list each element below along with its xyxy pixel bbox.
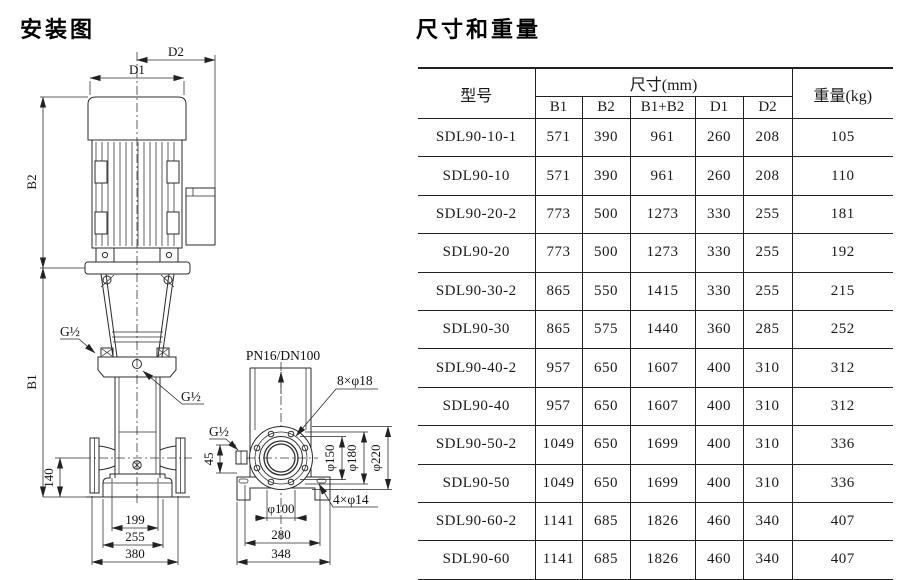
dim-140-label: 140 bbox=[41, 468, 56, 488]
dim-b1-label: B1 bbox=[24, 374, 39, 389]
dim-phi100-label: φ100 bbox=[267, 501, 294, 516]
b1-cell: 1049 bbox=[535, 426, 582, 464]
table-row: SDL90-10571390961260208110 bbox=[418, 157, 893, 195]
weight-cell: 181 bbox=[792, 195, 893, 233]
b1b2-cell: 1273 bbox=[630, 234, 695, 272]
b2-cell: 390 bbox=[582, 119, 630, 157]
table-row: SDL90-308655751440360285252 bbox=[418, 310, 893, 348]
coupling-bracket bbox=[101, 274, 174, 357]
b1b2-cell: 1826 bbox=[630, 541, 695, 580]
dim-280-label: 280 bbox=[271, 527, 291, 542]
dim-phi220-label: φ220 bbox=[368, 444, 383, 471]
dimensions-weight-table: 型号 尺寸(mm) 重量(kg) B1 B2 B1+B2 D1 D2 SDL90… bbox=[418, 67, 893, 580]
d1-cell: 330 bbox=[695, 195, 743, 233]
pump-base bbox=[86, 474, 190, 497]
weight-cell: 407 bbox=[792, 541, 893, 580]
pn-rating-label: PN16/DN100 bbox=[246, 348, 321, 363]
b2-cell: 650 bbox=[582, 387, 630, 425]
b1b2-cell: 961 bbox=[630, 157, 695, 195]
b2-cell: 685 bbox=[582, 541, 630, 580]
model-cell: SDL90-50-2 bbox=[418, 426, 535, 464]
front-view: D2 D1 B2 B1 G½ G½ 140 199 255 380 bbox=[24, 44, 215, 565]
b2-cell: 500 bbox=[582, 234, 630, 272]
col-header-d2: D2 bbox=[743, 97, 792, 119]
table-row: SDL90-10-1571390961260208105 bbox=[418, 119, 893, 157]
b1-cell: 571 bbox=[535, 157, 582, 195]
d2-cell: 340 bbox=[743, 502, 792, 540]
model-cell: SDL90-40 bbox=[418, 387, 535, 425]
leader-side-port bbox=[209, 439, 238, 450]
table-row: SDL90-60-211416851826460340407 bbox=[418, 502, 893, 540]
leader-bolt-circle bbox=[296, 389, 378, 436]
model-cell: SDL90-40-2 bbox=[418, 349, 535, 387]
d1-cell: 260 bbox=[695, 157, 743, 195]
b2-cell: 390 bbox=[582, 157, 630, 195]
flange-bolts-label: 8×φ18 bbox=[337, 373, 373, 388]
b1b2-cell: 1440 bbox=[630, 310, 695, 348]
b1-cell: 773 bbox=[535, 234, 582, 272]
weight-cell: 215 bbox=[792, 272, 893, 310]
d2-cell: 310 bbox=[743, 464, 792, 502]
d1-cell: 460 bbox=[695, 502, 743, 540]
col-header-size-group: 尺寸(mm) bbox=[535, 68, 792, 97]
b1b2-cell: 1699 bbox=[630, 426, 695, 464]
table-row: SDL90-6011416851826460340407 bbox=[418, 541, 893, 580]
d1-cell: 330 bbox=[695, 272, 743, 310]
b1-cell: 1141 bbox=[535, 502, 582, 540]
d1-cell: 400 bbox=[695, 387, 743, 425]
d1-cell: 460 bbox=[695, 541, 743, 580]
d2-cell: 310 bbox=[743, 387, 792, 425]
d2-cell: 208 bbox=[743, 157, 792, 195]
model-cell: SDL90-30 bbox=[418, 310, 535, 348]
b2-cell: 650 bbox=[582, 464, 630, 502]
dim-348-label: 348 bbox=[271, 546, 291, 561]
b2-cell: 500 bbox=[582, 195, 630, 233]
model-cell: SDL90-30-2 bbox=[418, 272, 535, 310]
b1b2-cell: 1699 bbox=[630, 464, 695, 502]
weight-cell: 407 bbox=[792, 502, 893, 540]
model-cell: SDL90-10 bbox=[418, 157, 535, 195]
b1b2-cell: 1273 bbox=[630, 195, 695, 233]
table-row: SDL90-50-210496501699400310336 bbox=[418, 426, 893, 464]
motor-fins bbox=[96, 142, 174, 246]
weight-cell: 336 bbox=[792, 464, 893, 502]
weight-cell: 312 bbox=[792, 387, 893, 425]
table-row: SDL90-40-29576501607400310312 bbox=[418, 349, 893, 387]
extension-lines-front bbox=[40, 55, 215, 565]
b2-cell: 550 bbox=[582, 272, 630, 310]
motor-flange bbox=[85, 248, 190, 274]
col-header-b1b2: B1+B2 bbox=[630, 97, 695, 119]
weight-cell: 336 bbox=[792, 426, 893, 464]
table-title: 尺寸和重量 bbox=[416, 12, 541, 44]
table-row: SDL90-30-28655501415330255215 bbox=[418, 272, 893, 310]
spec-sheet-page: 安装图 尺寸和重量 bbox=[0, 0, 900, 580]
d2-cell: 310 bbox=[743, 349, 792, 387]
b1-cell: 957 bbox=[535, 349, 582, 387]
d2-cell: 255 bbox=[743, 234, 792, 272]
table-row: SDL90-20-27735001273330255181 bbox=[418, 195, 893, 233]
dim-199-label: 199 bbox=[125, 512, 145, 527]
model-cell: SDL90-20-2 bbox=[418, 195, 535, 233]
header-row-1: 型号 尺寸(mm) 重量(kg) bbox=[418, 68, 893, 97]
b2-cell: 650 bbox=[582, 349, 630, 387]
side-port bbox=[236, 451, 247, 464]
col-header-d1: D1 bbox=[695, 97, 743, 119]
b1b2-cell: 1415 bbox=[630, 272, 695, 310]
weight-cell: 192 bbox=[792, 234, 893, 272]
weight-cell: 252 bbox=[792, 310, 893, 348]
model-cell: SDL90-60 bbox=[418, 541, 535, 580]
pump-barrel bbox=[115, 377, 160, 478]
col-header-b2: B2 bbox=[582, 97, 630, 119]
b1-cell: 773 bbox=[535, 195, 582, 233]
d1-cell: 330 bbox=[695, 234, 743, 272]
base-holes-label: 4×φ14 bbox=[333, 492, 369, 507]
weight-cell: 312 bbox=[792, 349, 893, 387]
d2-cell: 340 bbox=[743, 541, 792, 580]
b1-cell: 865 bbox=[535, 272, 582, 310]
d2-cell: 310 bbox=[743, 426, 792, 464]
model-cell: SDL90-50 bbox=[418, 464, 535, 502]
dim-d1-label: D1 bbox=[129, 62, 145, 77]
d1-cell: 400 bbox=[695, 349, 743, 387]
b2-cell: 685 bbox=[582, 502, 630, 540]
b1-cell: 957 bbox=[535, 387, 582, 425]
b2-cell: 575 bbox=[582, 310, 630, 348]
b2-cell: 650 bbox=[582, 426, 630, 464]
model-cell: SDL90-20 bbox=[418, 234, 535, 272]
b1-cell: 865 bbox=[535, 310, 582, 348]
b1-cell: 571 bbox=[535, 119, 582, 157]
table-row: SDL90-207735001273330255192 bbox=[418, 234, 893, 272]
side-view: PN16/DN100 8×φ18 G½ 45 φ150 φ180 φ220 φ1… bbox=[201, 348, 392, 565]
dim-380-label: 380 bbox=[125, 546, 145, 561]
dim-255-label: 255 bbox=[125, 529, 145, 544]
port-g-label-side: G½ bbox=[209, 424, 229, 439]
port-g-label-left: G½ bbox=[60, 324, 80, 339]
model-cell: SDL90-60-2 bbox=[418, 502, 535, 540]
col-header-weight: 重量(kg) bbox=[792, 68, 893, 119]
dim-phi150-label: φ150 bbox=[322, 444, 337, 471]
leader-vent-left bbox=[60, 339, 95, 353]
d1-cell: 360 bbox=[695, 310, 743, 348]
d2-cell: 285 bbox=[743, 310, 792, 348]
d1-cell: 400 bbox=[695, 426, 743, 464]
weight-cell: 110 bbox=[792, 157, 893, 195]
terminal-box bbox=[186, 188, 215, 245]
dim-d2-label: D2 bbox=[168, 44, 184, 59]
b1b2-cell: 1607 bbox=[630, 349, 695, 387]
b1b2-cell: 1607 bbox=[630, 387, 695, 425]
d1-cell: 260 bbox=[695, 119, 743, 157]
port-g-label-center: G½ bbox=[181, 389, 201, 404]
table-row: SDL90-5010496501699400310336 bbox=[418, 464, 893, 502]
b1b2-cell: 1826 bbox=[630, 502, 695, 540]
b1b2-cell: 961 bbox=[630, 119, 695, 157]
table-row: SDL90-409576501607400310312 bbox=[418, 387, 893, 425]
d2-cell: 255 bbox=[743, 272, 792, 310]
d1-cell: 400 bbox=[695, 464, 743, 502]
dim-45-label: 45 bbox=[201, 453, 216, 466]
d2-cell: 208 bbox=[743, 119, 792, 157]
pump-installation-drawing: D2 D1 B2 B1 G½ G½ 140 199 255 380 bbox=[0, 0, 415, 580]
d2-cell: 255 bbox=[743, 195, 792, 233]
flange-face bbox=[246, 427, 318, 490]
weight-cell: 105 bbox=[792, 119, 893, 157]
dimension-lines-front bbox=[43, 60, 215, 562]
dim-b2-label: B2 bbox=[24, 174, 39, 189]
coupling-guard bbox=[112, 332, 163, 342]
b1-cell: 1049 bbox=[535, 464, 582, 502]
model-cell: SDL90-10-1 bbox=[418, 119, 535, 157]
b1-cell: 1141 bbox=[535, 541, 582, 580]
dim-phi180-label: φ180 bbox=[344, 444, 359, 471]
col-header-b1: B1 bbox=[535, 97, 582, 119]
col-header-model: 型号 bbox=[418, 68, 535, 119]
